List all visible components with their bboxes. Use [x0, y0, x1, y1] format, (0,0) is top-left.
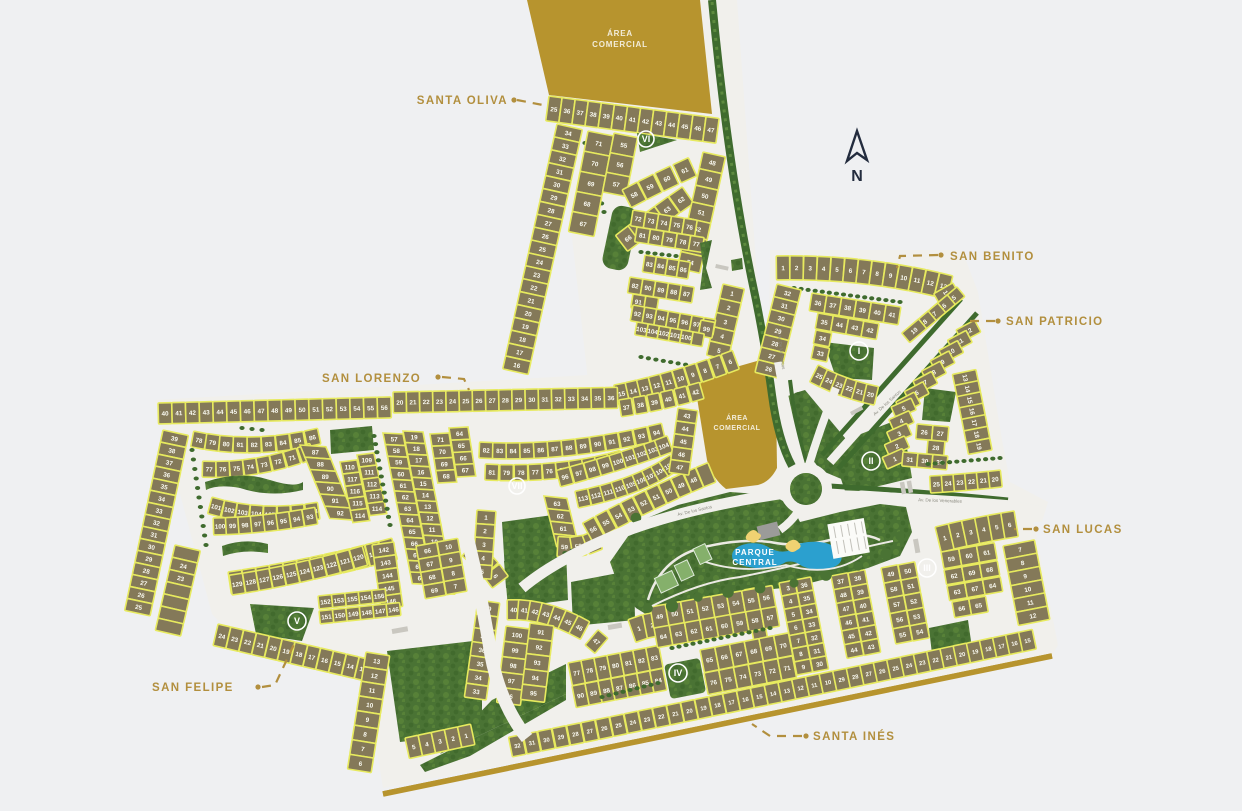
svg-text:46: 46 [694, 125, 702, 133]
svg-text:III: III [923, 563, 931, 573]
svg-text:59: 59 [395, 460, 403, 467]
svg-text:42: 42 [641, 118, 649, 126]
svg-text:66: 66 [460, 455, 468, 462]
svg-text:100: 100 [215, 523, 226, 530]
svg-text:27: 27 [865, 671, 873, 678]
svg-text:61: 61 [560, 526, 568, 533]
svg-text:23: 23 [436, 399, 444, 406]
svg-text:12: 12 [797, 685, 805, 692]
svg-text:VII: VII [511, 481, 522, 491]
svg-text:83: 83 [496, 448, 504, 455]
svg-text:41: 41 [175, 410, 183, 417]
svg-text:112: 112 [367, 482, 378, 489]
svg-text:2: 2 [795, 265, 799, 272]
svg-text:156: 156 [374, 593, 386, 601]
svg-text:155: 155 [347, 596, 359, 604]
svg-text:95: 95 [529, 690, 537, 698]
svg-text:SANTA OLIVA: SANTA OLIVA [417, 95, 508, 107]
svg-text:N: N [851, 168, 863, 185]
svg-text:98: 98 [241, 522, 249, 530]
svg-text:84: 84 [510, 448, 518, 455]
svg-text:65: 65 [458, 443, 466, 450]
svg-text:143: 143 [380, 559, 392, 567]
svg-text:81: 81 [236, 442, 244, 449]
svg-text:30: 30 [528, 397, 536, 404]
svg-text:32: 32 [555, 396, 563, 403]
svg-text:151: 151 [321, 613, 333, 621]
svg-text:78: 78 [517, 470, 525, 477]
svg-text:26: 26 [920, 429, 928, 437]
svg-text:48: 48 [271, 408, 279, 415]
svg-text:47: 47 [257, 408, 265, 415]
svg-text:99: 99 [511, 647, 519, 655]
svg-text:31: 31 [541, 397, 549, 404]
svg-text:22: 22 [932, 657, 940, 664]
svg-text:23: 23 [956, 479, 964, 487]
svg-text:36: 36 [563, 108, 571, 116]
svg-text:27: 27 [936, 431, 944, 439]
svg-text:79: 79 [503, 470, 511, 477]
svg-text:91: 91 [332, 498, 340, 505]
svg-text:17: 17 [728, 700, 736, 707]
svg-text:28: 28 [502, 397, 510, 404]
svg-text:19: 19 [411, 435, 419, 442]
svg-text:24: 24 [944, 480, 952, 488]
svg-text:115: 115 [352, 501, 363, 508]
svg-text:20: 20 [686, 708, 694, 715]
svg-text:89: 89 [322, 474, 330, 481]
svg-text:21: 21 [980, 477, 988, 485]
svg-text:117: 117 [347, 476, 358, 483]
svg-text:41: 41 [628, 116, 636, 124]
svg-text:85: 85 [523, 448, 531, 455]
svg-text:56: 56 [381, 405, 389, 412]
svg-text:18: 18 [413, 446, 421, 453]
svg-text:94: 94 [531, 675, 539, 683]
svg-text:45: 45 [681, 123, 689, 131]
svg-text:37: 37 [576, 110, 584, 118]
svg-text:76: 76 [546, 468, 554, 476]
svg-text:SAN BENITO: SAN BENITO [950, 251, 1035, 263]
svg-text:20: 20 [396, 400, 404, 407]
svg-text:40: 40 [161, 411, 169, 418]
svg-text:13: 13 [424, 504, 432, 511]
svg-text:25: 25 [933, 481, 941, 488]
svg-text:114: 114 [372, 506, 383, 513]
svg-text:70: 70 [439, 449, 447, 456]
svg-text:57: 57 [391, 437, 399, 444]
svg-text:92: 92 [535, 644, 543, 652]
svg-text:91: 91 [537, 629, 545, 637]
svg-text:20: 20 [959, 652, 967, 659]
svg-text:76: 76 [219, 466, 227, 473]
svg-text:149: 149 [348, 611, 360, 619]
svg-text:63: 63 [404, 506, 412, 513]
svg-text:60: 60 [397, 471, 405, 478]
svg-text:20: 20 [991, 476, 999, 484]
svg-text:100: 100 [511, 632, 523, 640]
svg-text:38: 38 [589, 111, 597, 119]
svg-text:49: 49 [285, 407, 293, 414]
svg-text:ÁREA: ÁREA [726, 413, 748, 422]
svg-text:SAN LUCAS: SAN LUCAS [1043, 524, 1123, 536]
svg-text:116: 116 [350, 489, 361, 496]
svg-text:93: 93 [533, 660, 541, 668]
svg-text:II: II [868, 456, 873, 466]
svg-text:25: 25 [462, 398, 470, 405]
svg-text:SANTA INÉS: SANTA INÉS [813, 730, 895, 743]
svg-text:67: 67 [462, 468, 470, 475]
svg-text:53: 53 [340, 406, 348, 413]
svg-text:148: 148 [361, 609, 373, 617]
svg-text:1: 1 [781, 265, 785, 272]
svg-text:111: 111 [364, 469, 374, 476]
svg-text:43: 43 [203, 409, 211, 416]
svg-text:50: 50 [299, 407, 307, 414]
svg-text:52: 52 [326, 406, 334, 413]
svg-text:114: 114 [355, 513, 366, 520]
svg-text:99: 99 [229, 523, 237, 530]
svg-text:144: 144 [382, 572, 394, 580]
svg-text:154: 154 [360, 594, 372, 602]
svg-text:40: 40 [510, 607, 518, 614]
svg-text:ÁREA: ÁREA [607, 29, 633, 38]
svg-text:44: 44 [668, 122, 676, 130]
svg-text:12: 12 [426, 516, 434, 523]
svg-text:96: 96 [267, 519, 275, 527]
svg-text:62: 62 [402, 495, 410, 502]
svg-text:109: 109 [361, 457, 372, 464]
svg-text:33: 33 [568, 396, 576, 403]
svg-text:90: 90 [327, 486, 335, 493]
svg-text:63: 63 [553, 501, 561, 508]
svg-text:82: 82 [483, 447, 491, 454]
svg-text:42: 42 [189, 410, 197, 417]
svg-text:28: 28 [932, 445, 940, 453]
svg-text:I: I [858, 346, 861, 356]
svg-text:62: 62 [557, 513, 565, 520]
svg-text:69: 69 [441, 461, 449, 468]
svg-text:80: 80 [222, 441, 230, 449]
svg-text:PARQUE: PARQUE [735, 548, 775, 557]
svg-text:45: 45 [230, 409, 238, 416]
svg-text:22: 22 [423, 399, 431, 406]
svg-text:26: 26 [475, 398, 483, 405]
svg-text:64: 64 [456, 431, 464, 438]
svg-text:150: 150 [334, 612, 346, 620]
svg-text:22: 22 [658, 714, 666, 721]
svg-text:88: 88 [317, 462, 325, 469]
svg-text:65: 65 [409, 529, 417, 536]
svg-text:86: 86 [537, 447, 545, 454]
svg-text:25: 25 [550, 106, 558, 114]
svg-text:92: 92 [337, 511, 345, 518]
svg-text:17: 17 [415, 458, 423, 465]
svg-text:147: 147 [375, 608, 387, 616]
svg-text:82: 82 [251, 442, 259, 449]
svg-text:88: 88 [565, 445, 573, 453]
svg-text:29: 29 [515, 397, 523, 404]
svg-text:142: 142 [378, 546, 390, 554]
svg-text:39: 39 [602, 113, 610, 121]
svg-text:27: 27 [489, 398, 497, 405]
svg-text:153: 153 [333, 597, 345, 605]
svg-text:16: 16 [417, 469, 425, 476]
svg-text:IV: IV [674, 668, 683, 678]
svg-text:VI: VI [642, 134, 651, 144]
svg-text:SAN FELIPE: SAN FELIPE [152, 682, 234, 694]
svg-text:40: 40 [615, 115, 623, 123]
svg-text:21: 21 [409, 399, 417, 406]
svg-text:31: 31 [906, 457, 914, 465]
svg-text:75: 75 [233, 465, 241, 473]
svg-text:58: 58 [393, 448, 401, 455]
svg-text:146: 146 [388, 606, 400, 614]
svg-text:51: 51 [312, 407, 320, 414]
svg-text:97: 97 [507, 678, 515, 686]
svg-text:54: 54 [353, 405, 361, 412]
svg-text:87: 87 [312, 449, 320, 456]
svg-text:84: 84 [279, 439, 287, 447]
svg-text:15: 15 [420, 481, 428, 488]
svg-text:43: 43 [655, 120, 663, 128]
svg-text:44: 44 [216, 409, 224, 416]
svg-text:36: 36 [607, 395, 615, 402]
svg-text:COMERCIAL: COMERCIAL [592, 40, 648, 49]
svg-text:34: 34 [581, 396, 589, 403]
svg-text:32: 32 [514, 743, 522, 750]
svg-text:14: 14 [422, 493, 430, 500]
svg-text:SAN PATRICIO: SAN PATRICIO [1006, 316, 1104, 328]
svg-text:COMERCIAL: COMERCIAL [714, 425, 761, 432]
svg-text:CENTRAL: CENTRAL [732, 558, 777, 567]
svg-text:27: 27 [586, 729, 594, 736]
svg-text:71: 71 [437, 437, 445, 444]
svg-text:SAN LORENZO: SAN LORENZO [322, 373, 421, 385]
svg-text:152: 152 [320, 598, 332, 606]
svg-text:30: 30 [543, 737, 551, 744]
svg-text:59: 59 [561, 544, 569, 551]
svg-text:77: 77 [532, 469, 540, 476]
svg-text:46: 46 [244, 408, 252, 415]
svg-text:77: 77 [206, 467, 214, 474]
svg-text:V: V [294, 616, 300, 626]
svg-text:97: 97 [254, 521, 262, 529]
svg-text:113: 113 [369, 494, 380, 501]
svg-text:89: 89 [579, 443, 587, 451]
svg-text:87: 87 [551, 446, 559, 454]
svg-text:68: 68 [443, 474, 451, 481]
svg-text:55: 55 [367, 405, 375, 412]
svg-text:47: 47 [707, 127, 715, 135]
svg-text:61: 61 [400, 483, 408, 490]
svg-text:110: 110 [345, 464, 356, 471]
svg-text:35: 35 [594, 395, 602, 402]
svg-text:64: 64 [406, 518, 414, 525]
svg-text:81: 81 [488, 469, 496, 476]
svg-text:24: 24 [449, 398, 457, 405]
svg-text:10: 10 [824, 680, 832, 687]
svg-text:22: 22 [968, 478, 976, 486]
svg-text:11: 11 [429, 527, 436, 534]
svg-text:98: 98 [509, 663, 517, 671]
svg-text:83: 83 [265, 441, 273, 449]
